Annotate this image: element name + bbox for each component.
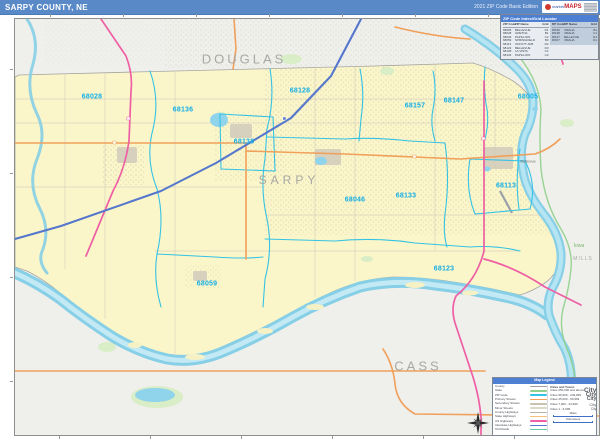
zip-code-label: 68059 bbox=[197, 281, 217, 288]
zip-table-cell: 68133 bbox=[503, 54, 515, 58]
legend-item-label: Secondary Streets bbox=[495, 402, 530, 405]
legend-line-sample bbox=[530, 390, 547, 392]
legend-line-sample bbox=[530, 407, 547, 409]
legend-line-sample bbox=[530, 399, 547, 401]
zip-code-label: 68128 bbox=[290, 88, 310, 95]
brand-logo: market MAPS bbox=[542, 1, 598, 13]
logo-prefix-text: market bbox=[552, 5, 564, 9]
legend-item-label: County Highways bbox=[495, 411, 530, 414]
county-name-label: SARPY bbox=[259, 173, 320, 187]
zip-table-header-cell: ZIP Name bbox=[564, 23, 590, 27]
zip-code-label: 68157 bbox=[405, 103, 425, 110]
header-bar: SARPY COUNTY, NE 2021 ZIP Code Basic Edi… bbox=[0, 0, 600, 15]
zip-table-body: ZIP CodeZIP NameGrid68005BELLEVUED168028… bbox=[501, 22, 598, 59]
zip-table-cell: D1 bbox=[589, 39, 597, 43]
zip-table-header-cell: ZIP Name bbox=[515, 23, 541, 27]
zip-table-title: ZIP Code Index/Grid Locator bbox=[501, 15, 598, 22]
legend-scale: Miles Kilometers bbox=[550, 412, 596, 423]
legend-city-label: Cities 1 - 6,999 bbox=[550, 408, 570, 411]
legend-cities-panel: Cities and Towns Cities 250,000 and abov… bbox=[547, 385, 596, 432]
legend-item-label: Toll Roads bbox=[495, 428, 530, 431]
zip-table-header-cell: ZIP Code bbox=[552, 23, 564, 27]
town-name-label: Bellevue bbox=[520, 159, 535, 164]
zip-code-label: 68138 bbox=[234, 139, 254, 146]
zip-code-label: 68147 bbox=[444, 98, 464, 105]
legend-city-label: Cities 99,999 - 249,999 bbox=[550, 394, 581, 397]
legend-city-label: Cities 250,000 and above bbox=[550, 389, 584, 392]
map-legend: Map Legend CountyStateZIP CodePrimary St… bbox=[492, 377, 597, 436]
legend-city-items: Cities 250,000 and aboveCityCities 99,99… bbox=[550, 389, 596, 412]
county-name-label: DOUGLAS bbox=[202, 52, 287, 67]
zip-table-group-right: ZIP CodeZIP NameGrid68136OMAHAB168138OMA… bbox=[550, 22, 599, 45]
zip-table-cell: 68157 bbox=[552, 39, 564, 43]
zip-code-label: 68005 bbox=[518, 94, 538, 101]
zip-table-header-cell: ZIP Code bbox=[503, 23, 515, 27]
legend-line-sample bbox=[530, 386, 547, 388]
page-title: SARPY COUNTY, NE bbox=[0, 3, 88, 12]
zip-table-header-row: ZIP CodeZIP NameGrid bbox=[503, 23, 549, 28]
frame-ticks-bottom bbox=[14, 436, 600, 439]
legend-city-sample: City bbox=[589, 403, 596, 407]
legend-line-sample bbox=[530, 412, 547, 414]
zip-table-header-row: ZIP CodeZIP NameGrid bbox=[552, 23, 598, 28]
zip-table-row: 68133PAPILLIONC2 bbox=[503, 54, 549, 58]
logo-maps-text: MAPS bbox=[564, 4, 581, 10]
legend-city-sample: City bbox=[591, 408, 597, 411]
legend-line-items: CountyStateZIP CodePrimary StreetsSecond… bbox=[495, 385, 547, 432]
zip-code-label: 68123 bbox=[434, 266, 454, 273]
legend-line-sample bbox=[530, 420, 547, 422]
county-name-label: MILLS bbox=[573, 256, 592, 262]
map-graphics bbox=[15, 19, 599, 435]
legend-line-sample bbox=[530, 429, 547, 431]
legend-item-label: US Highways bbox=[495, 420, 530, 423]
legend-line-sample bbox=[530, 403, 547, 405]
legend-line-sample bbox=[530, 416, 547, 418]
zip-table-row: 68157OMAHAD1 bbox=[552, 39, 598, 43]
zip-table-header-cell: Grid bbox=[541, 23, 549, 27]
zip-table-header-cell: Grid bbox=[589, 23, 597, 27]
legend-item-label: State bbox=[495, 389, 530, 392]
legend-item-label: Primary Streets bbox=[495, 398, 530, 401]
zip-code-label: 68136 bbox=[173, 107, 193, 114]
legend-item-label: Interstate Highways bbox=[495, 424, 530, 427]
legend-item-label: State Highways bbox=[495, 415, 530, 418]
legend-item-label: Minor Streets bbox=[495, 407, 530, 410]
zip-table-cell: PAPILLION bbox=[515, 54, 541, 58]
legend-body: CountyStateZIP CodePrimary StreetsSecond… bbox=[493, 384, 596, 433]
logo-side-box bbox=[584, 3, 597, 12]
legend-city-label: Cities 7,000 - 24,999 bbox=[550, 403, 578, 406]
zip-table-group-left: ZIP CodeZIP NameGrid68005BELLEVUED168028… bbox=[501, 22, 550, 59]
legend-line-sample bbox=[530, 425, 547, 427]
zip-table: ZIP Code Index/Grid Locator ZIP CodeZIP … bbox=[500, 14, 599, 60]
map-page: SARPY COUNTY, NE 2021 ZIP Code Basic Edi… bbox=[0, 0, 600, 441]
legend-city-label: Cities 25,000 - 99,999 bbox=[550, 398, 579, 401]
county-name-label: Iowa bbox=[574, 243, 585, 249]
zip-table-cell: C2 bbox=[541, 54, 549, 58]
legend-item-label: ZIP Code bbox=[495, 394, 530, 397]
scale-bar-km bbox=[553, 421, 593, 423]
zip-code-label: 68113 bbox=[496, 183, 516, 190]
legend-line-sample bbox=[530, 394, 547, 396]
legend-item-label: County bbox=[495, 385, 530, 388]
edition-label: 2021 ZIP Code Basic Edition bbox=[474, 4, 538, 10]
county-name-label: CASS bbox=[394, 359, 441, 374]
zip-code-label: 68028 bbox=[82, 94, 102, 101]
zip-table-cell: OMAHA bbox=[564, 39, 590, 43]
zip-code-label: 68046 bbox=[345, 197, 365, 204]
logo-swoosh-icon bbox=[545, 4, 551, 10]
zip-code-label: 68133 bbox=[396, 193, 416, 200]
map-canvas: 6802868136681386812868157681476800568046… bbox=[14, 18, 600, 436]
frame-ticks-left bbox=[10, 18, 13, 435]
legend-row: Toll Roads bbox=[495, 427, 547, 431]
